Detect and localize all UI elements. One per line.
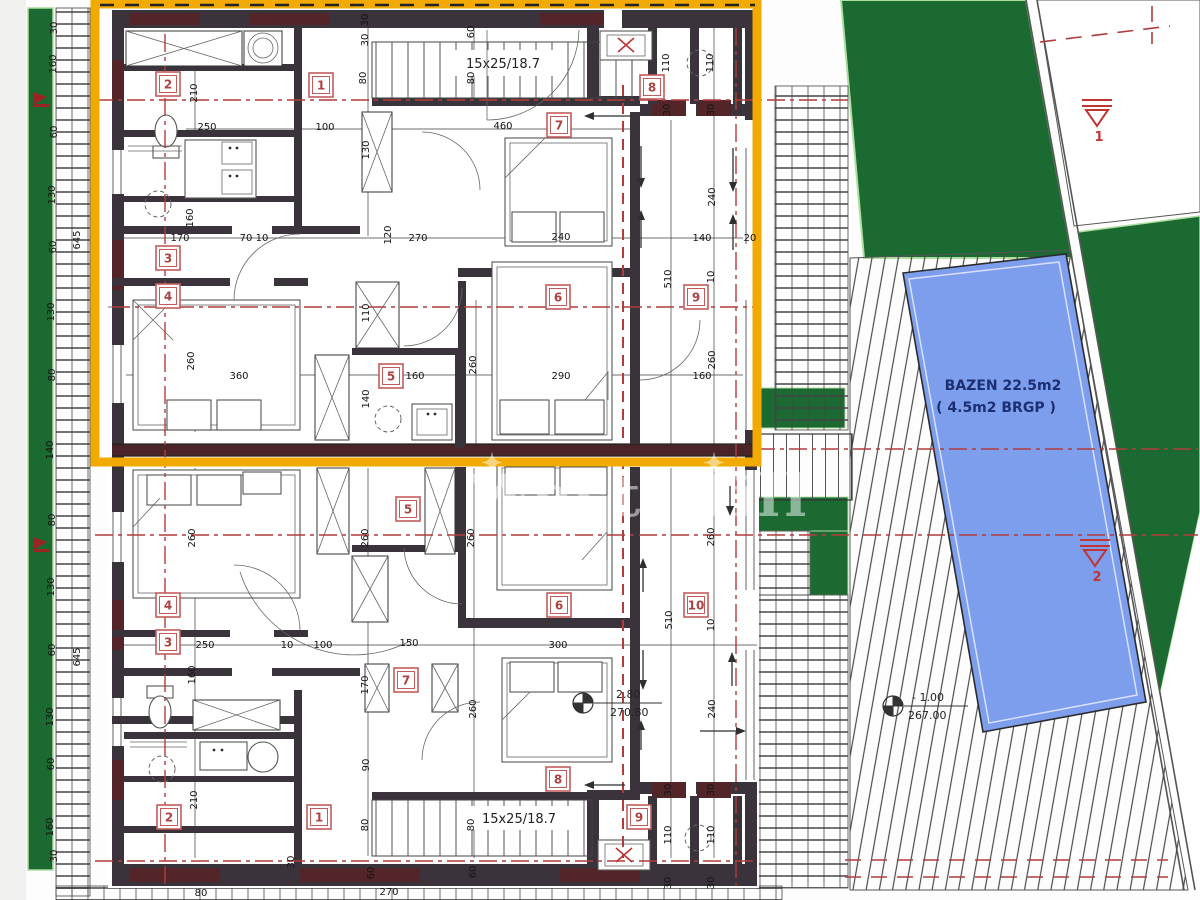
dim-label-upper: 260 (468, 355, 479, 374)
basin-room8-upper (600, 31, 652, 60)
room-label-upper-6: 6 (546, 285, 570, 309)
dim-label-left: 160 (45, 817, 56, 836)
room-label-upper-8: 8 (640, 75, 664, 99)
dim-label-lower: 10 (706, 619, 717, 632)
dim-label-lower: 30 (706, 877, 717, 890)
staircase-upper: 15x25/18.7 (372, 42, 632, 98)
toilet-upper (153, 115, 179, 158)
dim-label-upper: 100 (315, 122, 334, 133)
svg-text:4: 4 (164, 290, 172, 304)
dim-label-left: 130 (47, 185, 58, 204)
dim-label-upper: 160 (185, 208, 196, 227)
dim-label-upper: 10 (706, 271, 717, 284)
dim-label-left: 60 (48, 241, 59, 254)
elevation-site-datum: 267.00 (908, 709, 947, 722)
room-label-lower-6: 6 (547, 593, 571, 617)
svg-text:2: 2 (165, 811, 173, 825)
dim-label-lower: 260 (360, 528, 371, 547)
dim-label-lower: 10 (281, 640, 294, 651)
left-paving-strip (56, 8, 90, 896)
dim-label-upper: 140 (361, 389, 372, 408)
elevation-site-value: - 1.00 (912, 691, 944, 704)
room-label-lower-8: 8 (546, 767, 570, 791)
dim-label-upper: 160 (692, 371, 711, 382)
room-label-lower-4: 4 (156, 593, 180, 617)
dim-label-upper: 30 (662, 104, 673, 117)
svg-text:2: 2 (164, 78, 172, 92)
watermark: ✦ ✦ West Hill (468, 449, 812, 530)
dim-label-upper: 510 (663, 269, 674, 288)
room-label-lower-9: 9 (627, 805, 651, 829)
dim-label-upper: 30 (360, 34, 371, 47)
stairs-label-bottom: 15x25/18.7 (482, 812, 556, 827)
dim-label-upper: 360 (229, 371, 248, 382)
dim-label-lower: 110 (706, 825, 717, 844)
dim-label-lower: 30 (663, 877, 674, 890)
dim-label-left: 80 (47, 369, 58, 382)
dim-label-left: 30 (49, 22, 60, 35)
watermark-text: West Hill (468, 462, 812, 530)
dim-label-lower: 300 (548, 640, 567, 651)
floor-plan-page: BAZEN 22.5m2 ( 4.5m2 BRGP ) (0, 0, 1200, 900)
dim-label-bottom: 60 (366, 867, 377, 880)
dim-label-lower: 210 (189, 790, 200, 809)
dim-label-upper: 270 (408, 233, 427, 244)
dim-label-lower: 60 (468, 866, 479, 879)
dim-label-lower: 260 (468, 699, 479, 718)
dim-label-bottom: 80 (195, 888, 208, 899)
dim-label-upper: 30 (360, 14, 371, 27)
stairs-label-top: 15x25/18.7 (466, 57, 540, 72)
dim-label-lower: 80 (466, 819, 477, 832)
dim-label-lower: 250 (195, 640, 214, 651)
floor-plan-canvas: BAZEN 22.5m2 ( 4.5m2 BRGP ) (0, 0, 1200, 900)
dim-label-upper: 250 (197, 122, 216, 133)
svg-text:3: 3 (164, 636, 172, 650)
dim-label-left: 60 (46, 758, 57, 771)
dim-label-lower: 240 (707, 699, 718, 718)
dim-label-lower: 260 (706, 527, 717, 546)
staircase-lower: 15x25/18.7 (372, 800, 592, 856)
svg-text:1: 1 (315, 811, 323, 825)
dim-label-upper: 210 (189, 83, 200, 102)
room-label-lower-7: 7 (394, 668, 418, 692)
right-lower-paving (757, 595, 848, 888)
dim-label-left: 160 (48, 54, 59, 73)
dim-label-upper: 240 (551, 232, 570, 243)
benchmark-1-label: 1 (1094, 130, 1103, 145)
elevation-interior-value: 2.80 (616, 688, 641, 701)
dim-label-bottom: 270 (379, 887, 398, 898)
dim-label-upper: 110 (361, 303, 372, 322)
dim-label-left: 645 (72, 647, 83, 666)
dim-label-upper: 460 (493, 121, 512, 132)
room-label-lower-3: 3 (156, 630, 180, 654)
svg-text:6: 6 (555, 599, 563, 613)
dim-label-left: 645 (72, 230, 83, 249)
svg-text:5: 5 (404, 503, 412, 517)
basin-room5-upper (412, 404, 452, 440)
room-label-lower-2: 2 (157, 805, 181, 829)
dim-label-lower: 30 (706, 784, 717, 797)
elevation-interior-datum: 270.80 (610, 706, 649, 719)
room-label-upper-2: 2 (156, 72, 180, 96)
svg-text:9: 9 (635, 811, 643, 825)
dim-label-lower: 160 (187, 665, 198, 684)
dim-label-upper: 80 (466, 72, 477, 85)
dim-label-lower: 100 (313, 640, 332, 651)
dim-label-upper: 120 (383, 225, 394, 244)
dim-label-upper: 170 (170, 233, 189, 244)
dim-label-upper: 60 (466, 26, 477, 39)
dim-label-upper: 290 (551, 371, 570, 382)
dim-label-lower: 150 (399, 638, 418, 649)
right-upper-paving (775, 86, 848, 430)
page-left-margin (0, 0, 26, 900)
svg-text:7: 7 (402, 674, 410, 688)
dim-label-upper: 30 (706, 104, 717, 117)
dim-label-lower: 90 (361, 759, 372, 772)
benchmark-2-label: 2 (1092, 570, 1101, 585)
svg-text:6: 6 (554, 291, 562, 305)
svg-text:1: 1 (317, 79, 325, 93)
room-label-lower-1: 1 (307, 805, 331, 829)
dim-label-upper: 140 (692, 233, 711, 244)
dim-label-left: 130 (46, 302, 57, 321)
dim-label-left: 30 (49, 850, 60, 863)
dim-label-upper: 260 (186, 351, 197, 370)
dim-label-lower: 260 (187, 528, 198, 547)
dim-label-bottom: 30 (286, 856, 297, 869)
dim-label-lower: 170 (360, 675, 371, 694)
inter-unit-slab (112, 444, 757, 456)
dim-label-upper: 260 (707, 350, 718, 369)
dim-label-lower: 510 (664, 610, 675, 629)
dim-label-lower: 260 (466, 528, 477, 547)
dim-label-lower: 30 (663, 784, 674, 797)
room-label-lower-5: 5 (396, 497, 420, 521)
room-label-upper-4: 4 (156, 284, 180, 308)
dim-label-lower: 80 (360, 819, 371, 832)
room-label-upper-5: 5 (379, 364, 403, 388)
dim-label-upper: 130 (361, 140, 372, 159)
dim-label-upper: 240 (707, 187, 718, 206)
dim-label-upper: 160 (405, 371, 424, 382)
dim-label-upper: 110 (705, 53, 716, 72)
dim-label-left: 60 (49, 126, 60, 139)
svg-text:4: 4 (164, 599, 172, 613)
dim-label-left: 140 (45, 440, 56, 459)
svg-text:5: 5 (387, 370, 395, 384)
svg-text:3: 3 (164, 252, 172, 266)
room-label-lower-10: 10 (684, 593, 708, 617)
dim-label-left: 130 (45, 707, 56, 726)
room-label-upper-1: 1 (309, 73, 333, 97)
svg-text:8: 8 (648, 81, 656, 95)
dim-label-left: 60 (47, 644, 58, 657)
dim-label-left: 130 (46, 577, 57, 596)
toilet-lower (147, 686, 173, 728)
svg-text:7: 7 (555, 119, 563, 133)
svg-text:9: 9 (692, 291, 700, 305)
room-label-upper-7: 7 (547, 113, 571, 137)
dim-label-upper: 20 (744, 233, 757, 244)
room-label-upper-9: 9 (684, 285, 708, 309)
dim-label-upper: 110 (661, 53, 672, 72)
dim-label-left: 80 (47, 514, 58, 527)
room-label-upper-3: 3 (156, 246, 180, 270)
dim-label-upper: 80 (358, 72, 369, 85)
svg-text:8: 8 (554, 773, 562, 787)
pool-label-area: BAZEN 22.5m2 (945, 378, 1062, 394)
dim-label-lower: 110 (663, 825, 674, 844)
svg-text:10: 10 (688, 599, 705, 613)
pool-label-brgp: ( 4.5m2 BRGP ) (936, 400, 1056, 416)
dim-label-upper: 70 10 (240, 233, 269, 244)
